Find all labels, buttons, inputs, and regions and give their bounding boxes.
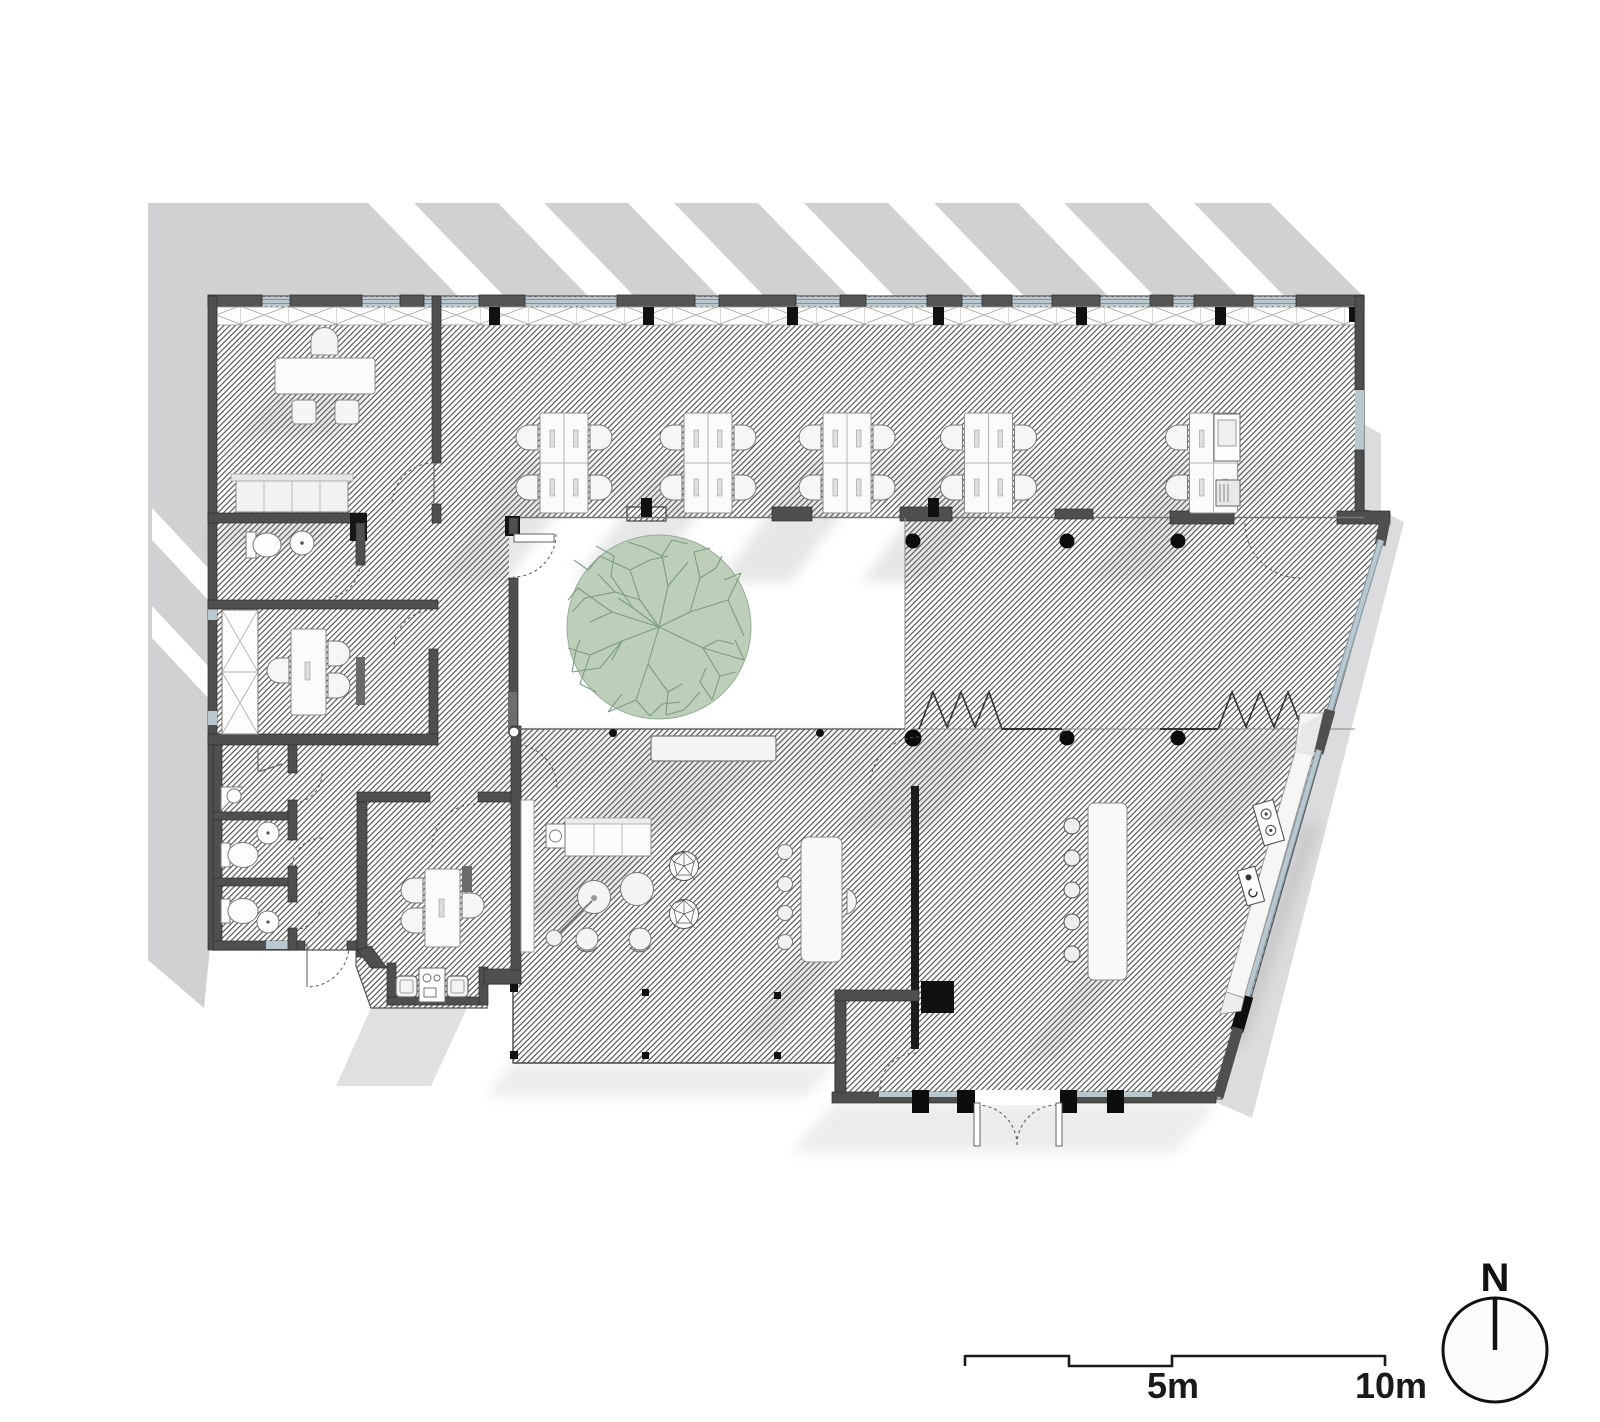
svg-text:10m: 10m (1355, 1365, 1427, 1406)
svg-text:N: N (1481, 1256, 1510, 1300)
svg-text:5m: 5m (1147, 1365, 1199, 1406)
